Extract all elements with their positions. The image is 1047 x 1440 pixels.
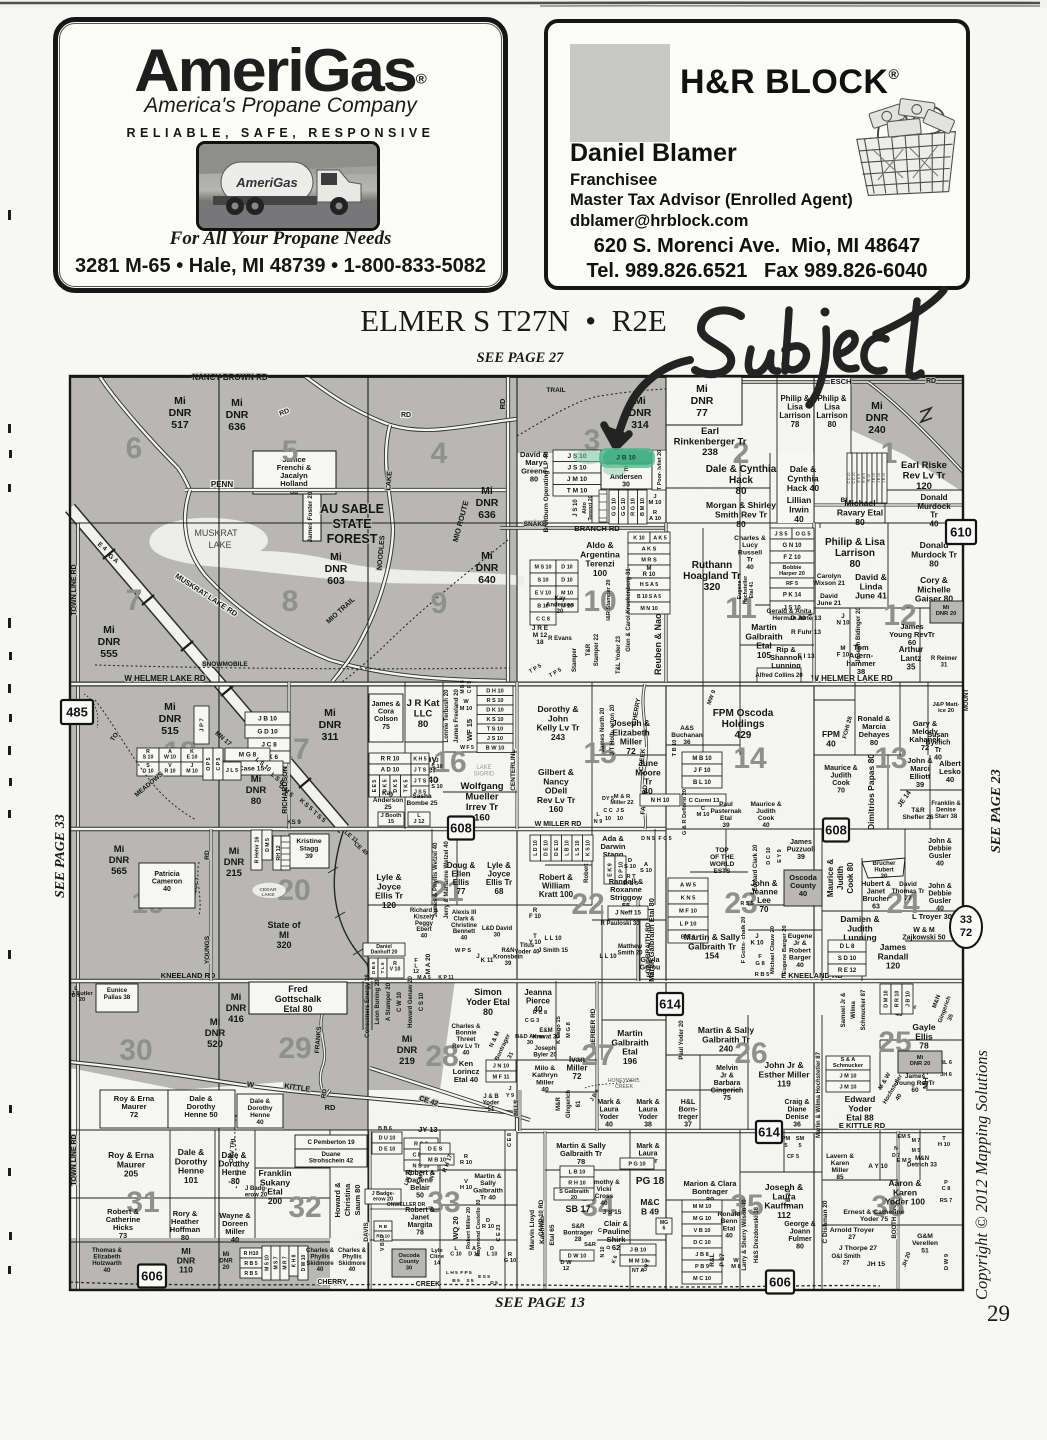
svg-text:J B 10: J B 10 — [616, 455, 636, 462]
svg-text:MOUNT: MOUNT — [964, 689, 970, 711]
